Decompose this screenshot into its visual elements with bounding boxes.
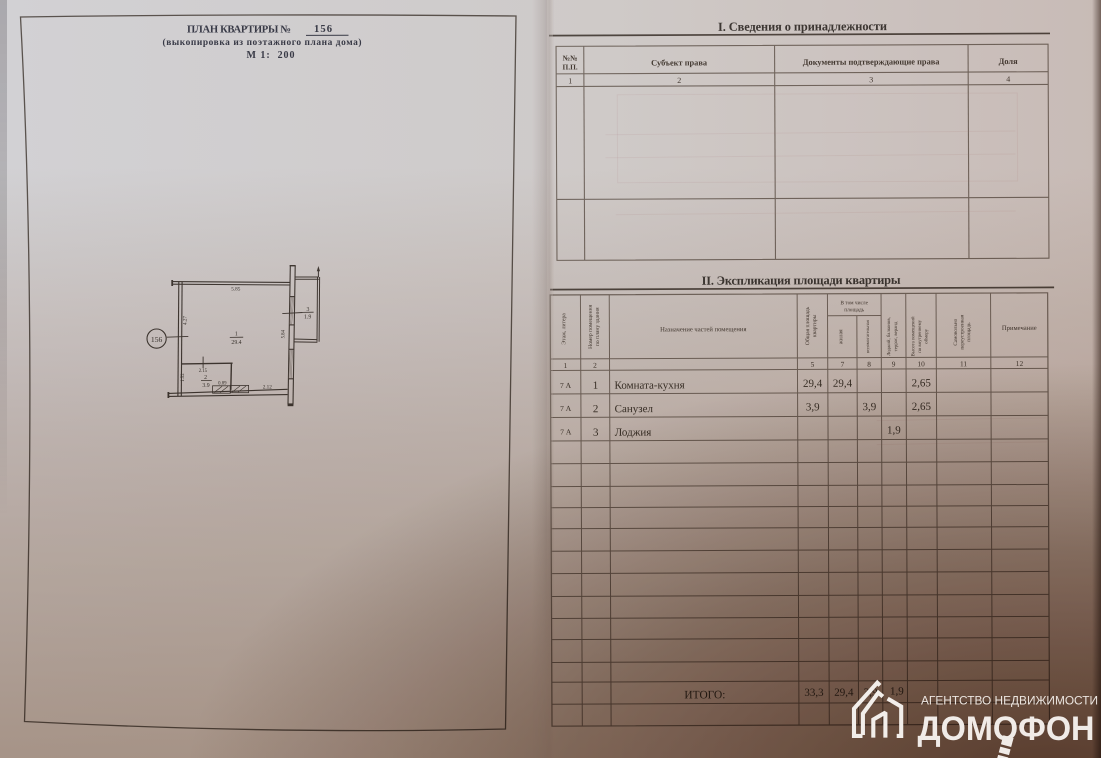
svg-text:АГЕНТСТВО НЕДВИЖИМОСТИ: АГЕНТСТВО НЕДВИЖИМОСТИ (921, 694, 1098, 708)
